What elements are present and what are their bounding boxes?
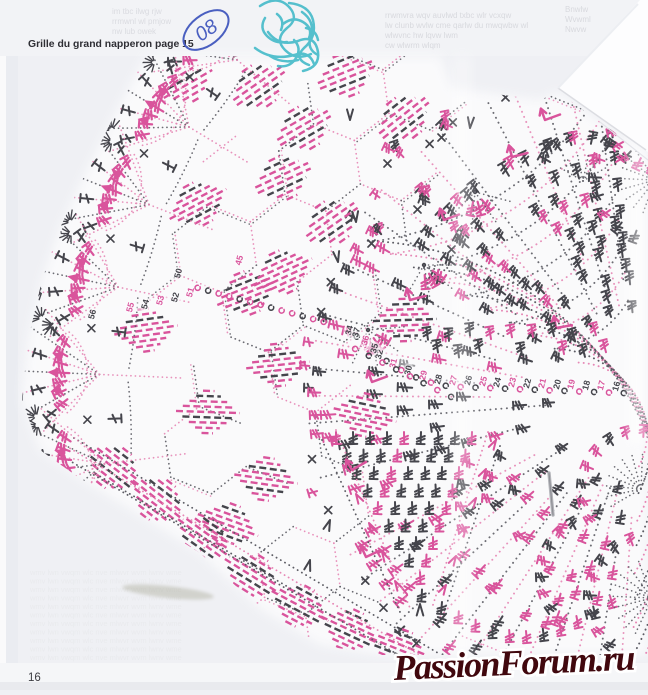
svg-text:Grille du grand napperon page: Grille du grand napperon page 15	[28, 39, 194, 50]
svg-text:im tbc ilwg rjw: im tbc ilwg rjw	[112, 7, 162, 16]
svg-text:Wvwml: Wvwml	[565, 15, 591, 24]
svg-text:nw lub owek: nw lub owek	[112, 27, 157, 36]
svg-text:Nwvw: Nwvw	[565, 25, 587, 34]
svg-text:Bnwlw: Bnwlw	[565, 5, 588, 14]
svg-text:rrwmvra wqv auvlwd txbc wlr vc: rrwmvra wqv auvlwd txbc wlr vcxqw	[385, 11, 511, 20]
svg-text:wmv lwn vwqm wlc nve mlwvr wvm: wmv lwn vwqm wlc nve mlwvr wvm lwnv wme	[29, 653, 182, 662]
svg-text:wlwvnc hw lqvw lwm: wlwvnc hw lqvw lwm	[384, 31, 458, 40]
svg-text:lw clunb wvlw cme qarlw du mwq: lw clunb wvlw cme qarlw du mwqwbw wl	[385, 21, 528, 30]
svg-text:16: 16	[28, 672, 41, 684]
svg-text:rrmwnl wl pmjow: rrmwnl wl pmjow	[112, 17, 171, 26]
svg-text:cw wlwrm wlqm: cw wlwrm wlqm	[385, 41, 441, 50]
